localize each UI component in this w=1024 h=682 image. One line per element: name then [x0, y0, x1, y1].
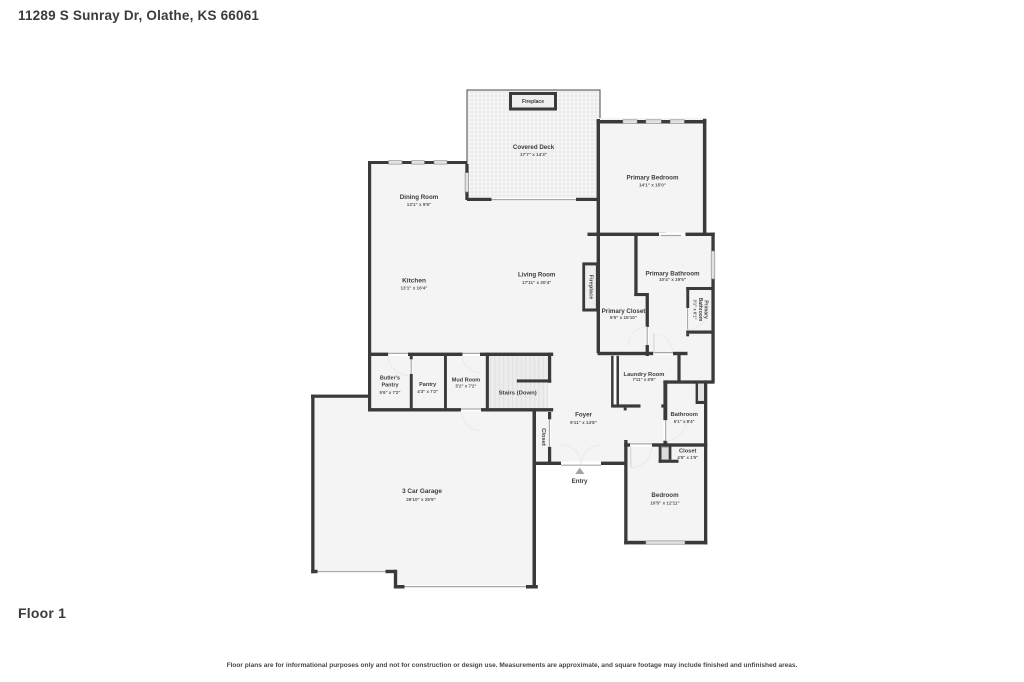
- svg-text:Closet: Closet: [540, 428, 546, 446]
- svg-text:17'7" x 14'3": 17'7" x 14'3": [520, 152, 547, 157]
- svg-text:Bedroom: Bedroom: [651, 492, 679, 499]
- svg-text:14'1" x 15'0": 14'1" x 15'0": [639, 182, 666, 187]
- svg-text:Stairs (Down): Stairs (Down): [499, 391, 537, 397]
- svg-text:Closet: Closet: [679, 449, 696, 455]
- svg-text:Mud Room: Mud Room: [452, 377, 481, 383]
- svg-text:Entry: Entry: [572, 478, 588, 485]
- svg-text:10'5" x 12'11": 10'5" x 12'11": [650, 500, 679, 505]
- svg-text:Pantry: Pantry: [419, 382, 437, 388]
- svg-text:3 Car Garage: 3 Car Garage: [402, 488, 442, 495]
- svg-text:Dining Room: Dining Room: [400, 194, 439, 201]
- svg-text:Covered Deck: Covered Deck: [513, 144, 555, 151]
- svg-text:6'5" x 15'10": 6'5" x 15'10": [610, 315, 637, 320]
- svg-text:Kitchen: Kitchen: [402, 278, 426, 285]
- svg-text:4'3" x 7'2": 4'3" x 7'2": [417, 389, 438, 394]
- svg-text:7'11" x 6'8": 7'11" x 6'8": [632, 377, 655, 382]
- svg-text:Living Room: Living Room: [518, 272, 556, 279]
- svg-text:5'2" x 7'2": 5'2" x 7'2": [456, 383, 477, 388]
- svg-text:Primary Bedroom: Primary Bedroom: [627, 174, 679, 181]
- svg-text:4'5" x 1'9": 4'5" x 1'9": [677, 455, 698, 460]
- svg-text:13'1" x 16'4": 13'1" x 16'4": [401, 285, 428, 290]
- svg-text:Foyer: Foyer: [575, 412, 592, 419]
- svg-text:29'10" x 25'9": 29'10" x 25'9": [406, 497, 436, 502]
- svg-text:13'1" x 9'5": 13'1" x 9'5": [407, 202, 431, 207]
- svg-text:5'1" x 8'4": 5'1" x 8'4": [674, 419, 695, 424]
- svg-text:Bathroom: Bathroom: [671, 412, 698, 418]
- svg-text:9'11" x 14'8": 9'11" x 14'8": [570, 420, 597, 425]
- svg-text:Fireplace: Fireplace: [588, 275, 594, 300]
- svg-text:10'4" x 19'5": 10'4" x 19'5": [659, 277, 686, 282]
- svg-text:5'6" x 7'2": 5'6" x 7'2": [380, 390, 401, 395]
- svg-text:Fireplace: Fireplace: [522, 99, 544, 105]
- svg-text:3'1" x 6'1": 3'1" x 6'1": [693, 300, 698, 320]
- svg-text:17'11" x 20'4": 17'11" x 20'4": [522, 280, 551, 285]
- svg-text:Butler's: Butler's: [380, 375, 400, 381]
- svg-text:Pantry: Pantry: [381, 383, 399, 389]
